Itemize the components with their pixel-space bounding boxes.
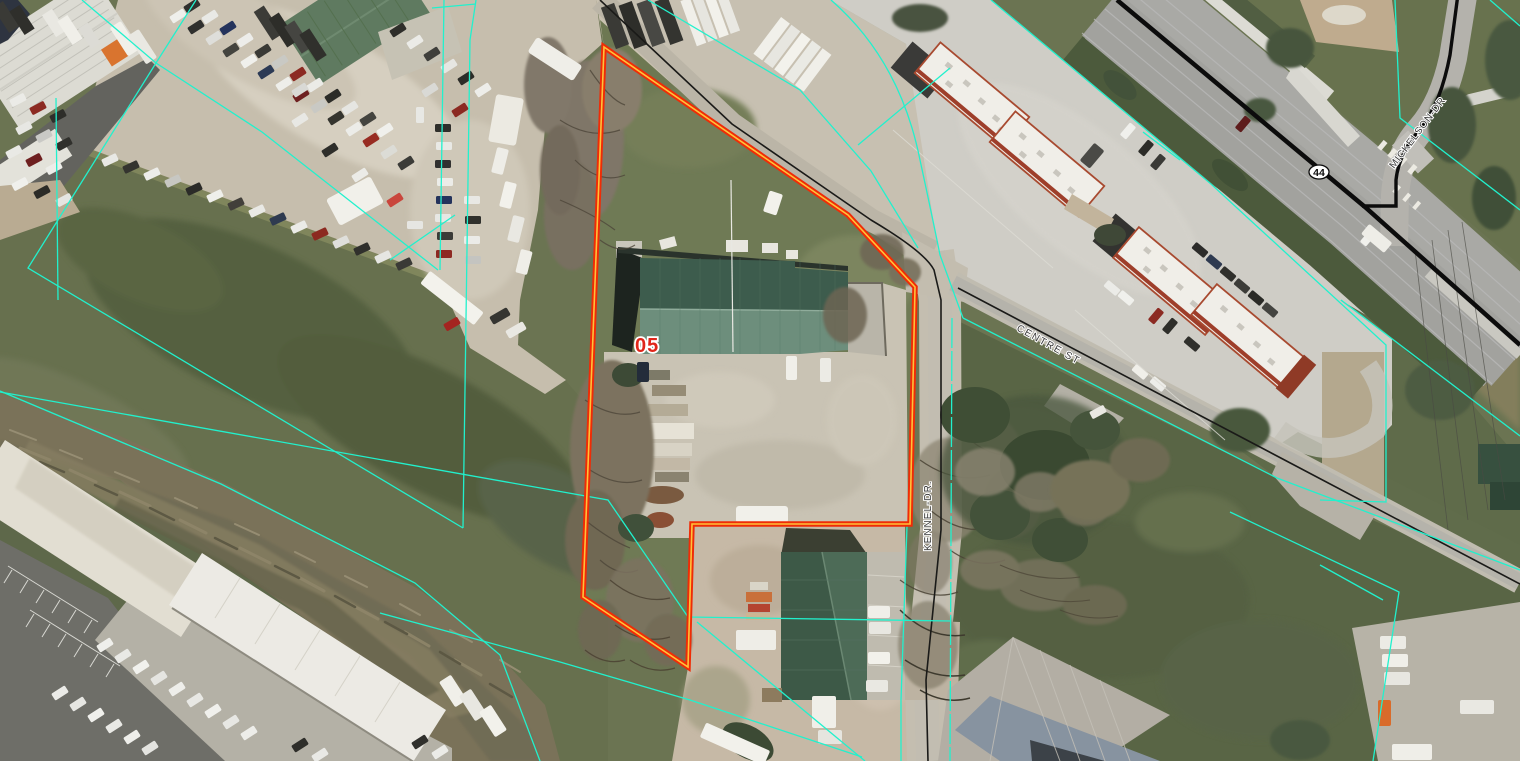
svg-text:44: 44 xyxy=(1313,167,1325,179)
svg-text:05: 05 xyxy=(635,335,659,357)
svg-text:KENNEL-DR.: KENNEL-DR. xyxy=(923,480,934,551)
